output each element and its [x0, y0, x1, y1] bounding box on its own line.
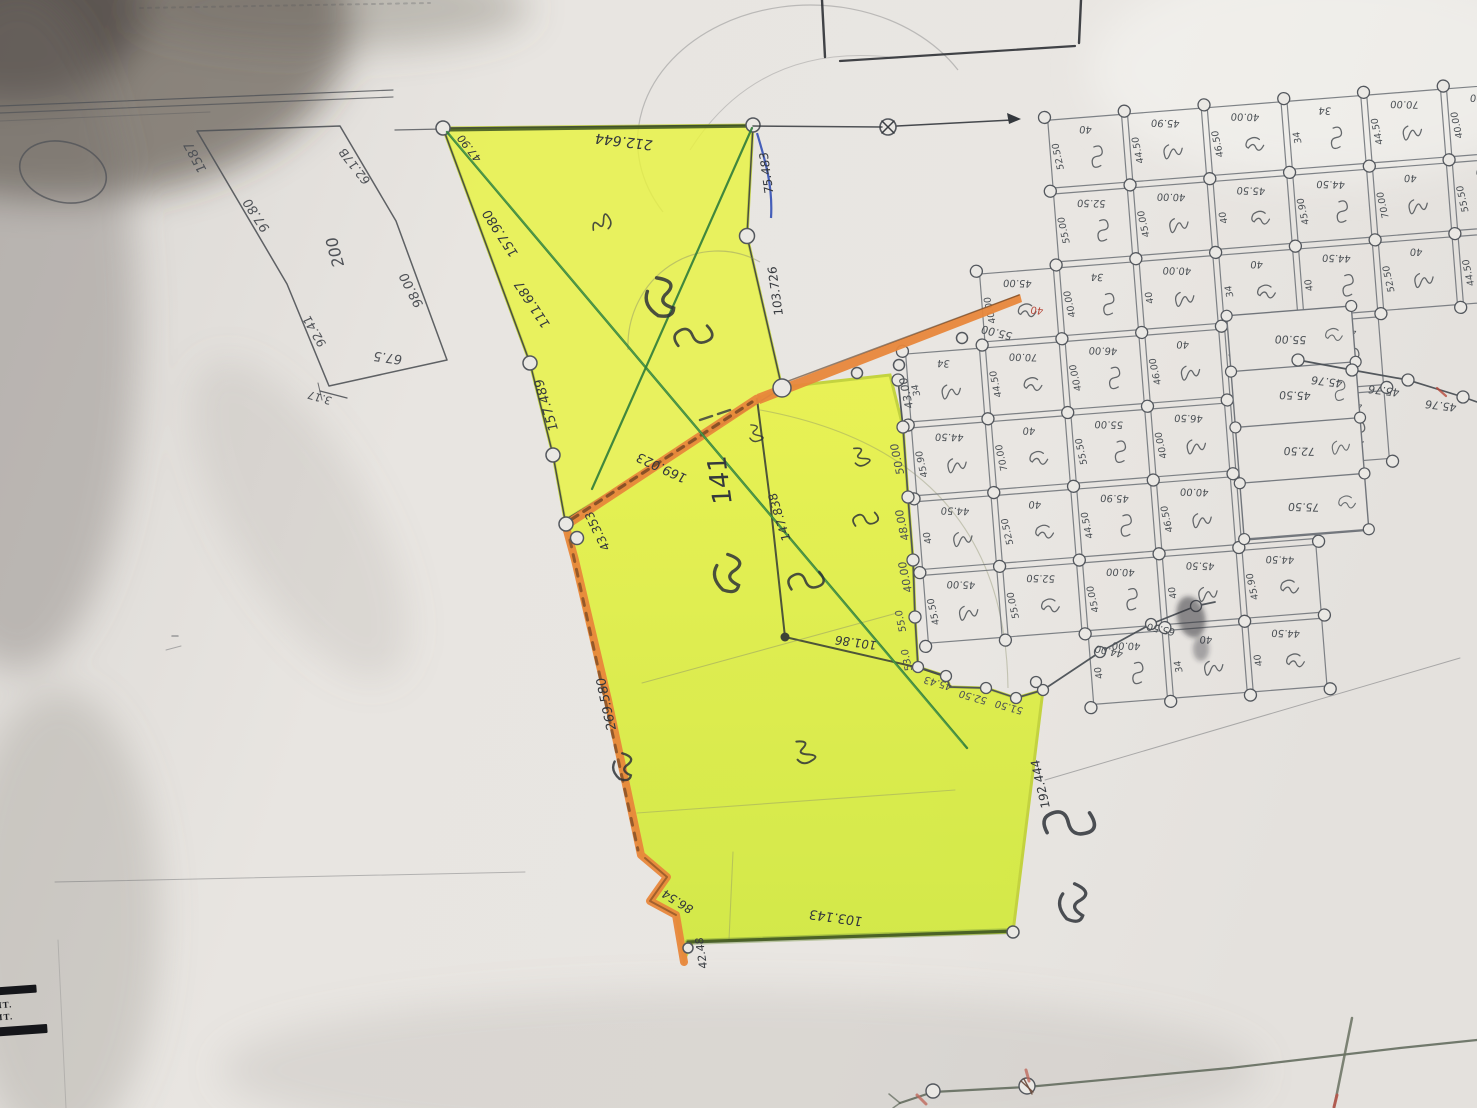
plot-dimension-label: 55.00: [1274, 332, 1307, 346]
grid-node-marker: [1234, 477, 1246, 489]
grid-node-marker: [1124, 178, 1137, 191]
grid-node-marker: [1277, 92, 1290, 105]
plot-dimension-label: 70.00: [1008, 351, 1038, 363]
grid-node-marker: [1164, 695, 1177, 708]
plot-dimension-label: 46.00: [1088, 344, 1118, 356]
grid-node-marker: [1055, 332, 1068, 345]
grid-node-marker: [970, 265, 983, 278]
plot-dimension-label: 44.50: [940, 504, 970, 516]
plot-dimension-label: 40.00: [1162, 264, 1192, 276]
grid-node-marker: [1209, 246, 1222, 259]
grid-node-marker: [1324, 682, 1337, 695]
plot-dimension-label: 75.50: [1287, 500, 1320, 514]
grid-node-marker: [1244, 689, 1257, 702]
plot-dimension-label: 52.50: [1026, 572, 1056, 584]
stamp-bar: [0, 985, 37, 997]
plot-dimension-label: 34: [936, 357, 950, 368]
corner-stamp: ΔIT. ΔIT.: [0, 980, 54, 1042]
survey-point-marker: [897, 421, 909, 433]
grid-node-marker: [1085, 701, 1098, 714]
grid-node-marker: [1230, 422, 1242, 434]
plot-dimension-label: 40: [1079, 123, 1093, 134]
pencil-smudge: [1193, 637, 1209, 661]
plot-dimension-label: 45.50: [1185, 559, 1215, 571]
grid-node-marker: [1221, 310, 1233, 322]
grid-node-marker: [1203, 172, 1216, 185]
grid-node-marker: [1448, 227, 1461, 240]
plot-dimension-label: 44.50: [1265, 553, 1295, 565]
plot-dimension-label: 40: [1403, 172, 1417, 183]
survey-point-marker: [852, 368, 863, 379]
grid-node-marker: [976, 339, 989, 352]
grid-node-marker: [1221, 394, 1234, 407]
survey-point-marker: [523, 356, 537, 370]
plot-dimension-label: 44.50: [1316, 178, 1346, 190]
survey-point-marker: [926, 1084, 940, 1098]
grid-node-marker: [1443, 153, 1456, 166]
boundary-line: [753, 126, 882, 127]
plot-dimension-label: 44.50: [1321, 252, 1351, 264]
measurement-label: 40: [1030, 303, 1045, 315]
survey-point-marker: [746, 118, 760, 132]
plot-dimension-label: 45.50: [1278, 388, 1311, 402]
plot-dimension-label: 34: [1090, 271, 1104, 282]
survey-point-marker: [683, 943, 693, 953]
plot-dimension-label: 40: [1028, 498, 1042, 509]
survey-point-marker: [546, 448, 560, 462]
plot-dimension-label: 44.50: [934, 431, 964, 443]
grid-node-marker: [919, 640, 932, 653]
grid-node-marker: [1359, 468, 1371, 480]
plot-dimension-label: 40.00: [1179, 486, 1209, 498]
plot-dimension-label: 40: [1176, 338, 1190, 349]
grid-node-marker: [1044, 185, 1057, 198]
plot-dimension-label: 45.00: [1002, 277, 1032, 289]
grid-node-marker: [1135, 326, 1148, 339]
grid-node-marker: [987, 486, 1000, 499]
plot-dimension-label: 40: [1022, 424, 1036, 435]
survey-map-photo: 4052.5045.9044.5040.0046.50343470.0044.5…: [0, 0, 1477, 1108]
grid-node-marker: [1357, 86, 1370, 99]
grid-node-marker: [1363, 160, 1376, 173]
stamp-bar: [0, 1024, 48, 1037]
grid-node-marker: [1454, 301, 1467, 314]
grid-node-marker: [1386, 455, 1399, 468]
survey-point-marker: [909, 611, 921, 623]
grid-node-marker: [1318, 609, 1331, 622]
survey-point-marker: [1031, 677, 1042, 688]
survey-point-marker: [1346, 364, 1358, 376]
plot-dimension-label: 45.50: [1236, 184, 1266, 196]
grid-node-marker: [1067, 480, 1080, 493]
survey-point-marker: [773, 379, 791, 397]
grid-node-marker: [1238, 533, 1250, 545]
grid-node-marker: [1312, 535, 1325, 548]
survey-point-marker: [571, 532, 584, 545]
grid-node-marker: [1050, 259, 1063, 272]
grid-node-marker: [1289, 240, 1302, 253]
survey-point-marker: [559, 517, 573, 531]
grid-node-marker: [1073, 554, 1086, 567]
survey-point-marker: [1292, 354, 1304, 366]
plot-dimension-label: 44.50: [1271, 627, 1301, 639]
grid-node-marker: [1147, 474, 1160, 487]
survey-point-marker: [781, 633, 790, 642]
survey-point-marker: [1402, 374, 1414, 386]
survey-point-marker: [902, 491, 914, 503]
plot-dimension-label: 52.50: [1076, 197, 1106, 209]
grid-node-marker: [913, 566, 926, 579]
grid-node-marker: [1141, 400, 1154, 413]
grid-node-marker: [1437, 80, 1450, 93]
survey-point-marker: [740, 229, 755, 244]
grid-node-marker: [1153, 547, 1166, 560]
grid-node-marker: [1198, 98, 1211, 111]
grid-node-marker: [1238, 615, 1251, 628]
plot-dimension-label: 55.00: [1094, 418, 1124, 430]
plot-dimension-label: 40.00: [1105, 566, 1135, 578]
plot-dimension-label: 40.00: [1230, 110, 1260, 122]
grid-node-marker: [993, 560, 1006, 573]
map-drawing: 4052.5045.9044.5040.0046.50343470.0044.5…: [0, 0, 1477, 1108]
grid-node-marker: [1061, 406, 1074, 419]
grid-node-marker: [1374, 307, 1387, 320]
survey-point-marker: [981, 683, 992, 694]
stamp-text-line: ΔIT.: [0, 1008, 53, 1025]
grid-node-marker: [1354, 412, 1366, 424]
grid-node-marker: [1345, 300, 1357, 312]
grid-node-marker: [1118, 105, 1131, 118]
grid-node-marker: [1283, 166, 1296, 179]
plot-dimension-label: 34: [1318, 104, 1332, 115]
grid-node-marker: [1225, 366, 1237, 378]
survey-point-marker: [957, 333, 968, 344]
plot-dimension-label: 40.00: [1156, 190, 1186, 202]
plot-dimension-label: 45.00: [946, 578, 976, 590]
grid-node-marker: [1079, 627, 1092, 640]
plot-dimension-label: 70.00: [1390, 98, 1420, 110]
plot-dimension-label: 45.90: [1150, 117, 1180, 129]
grid-node-marker: [1129, 252, 1142, 265]
plot-dimension-label: 40: [1250, 258, 1264, 269]
grid-node-marker: [982, 412, 995, 425]
plot-dimension-label: 46.50: [1174, 412, 1204, 424]
grid-node-marker: [1363, 523, 1375, 535]
plot-dimension-label: 72.50: [1283, 444, 1316, 458]
survey-point-marker: [1007, 926, 1019, 938]
grid-node-marker: [999, 634, 1012, 647]
plot-dimension-label: 45.90: [1100, 492, 1130, 504]
plot-dimension-label: 40: [1409, 246, 1423, 257]
grid-node-marker: [1038, 111, 1051, 124]
grid-node-marker: [1369, 233, 1382, 246]
survey-point-marker: [894, 360, 905, 371]
